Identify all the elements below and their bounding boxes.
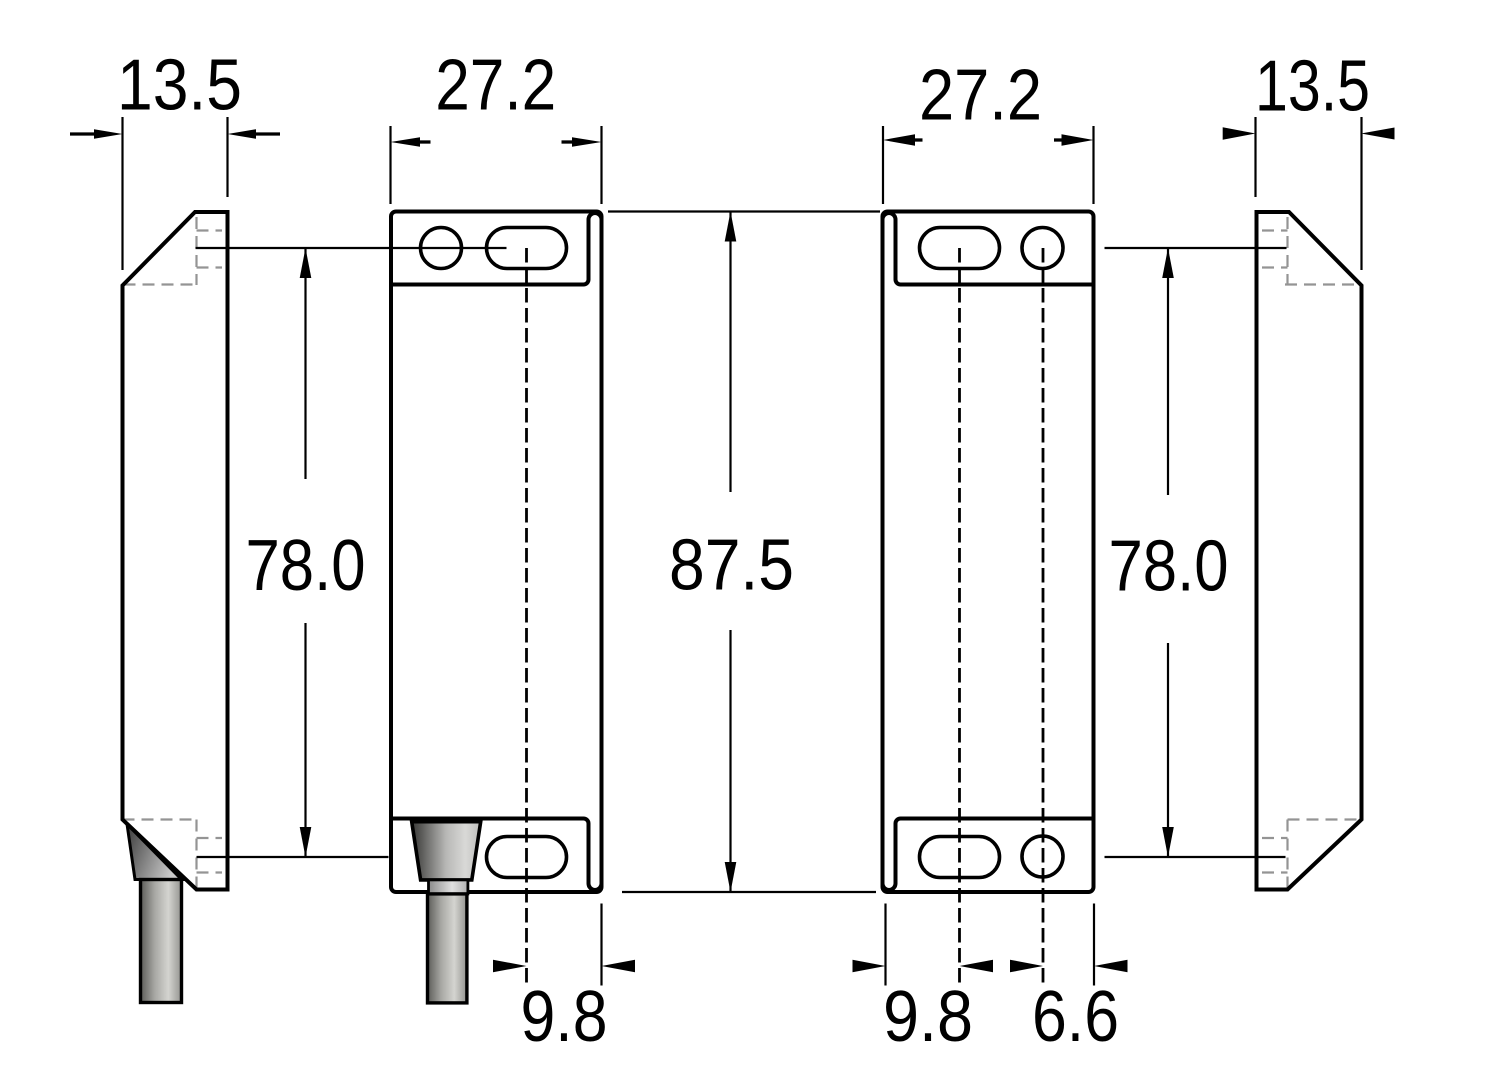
svg-text:78.0: 78.0 <box>1109 527 1229 607</box>
svg-text:9.8: 9.8 <box>883 977 973 1057</box>
svg-text:9.8: 9.8 <box>521 977 608 1057</box>
svg-text:6.6: 6.6 <box>1032 977 1119 1057</box>
svg-text:27.2: 27.2 <box>919 56 1042 136</box>
svg-text:13.5: 13.5 <box>1255 47 1370 127</box>
svg-text:13.5: 13.5 <box>117 46 242 126</box>
svg-text:27.2: 27.2 <box>435 46 556 126</box>
svg-text:78.0: 78.0 <box>246 526 366 606</box>
svg-text:87.5: 87.5 <box>669 526 794 606</box>
